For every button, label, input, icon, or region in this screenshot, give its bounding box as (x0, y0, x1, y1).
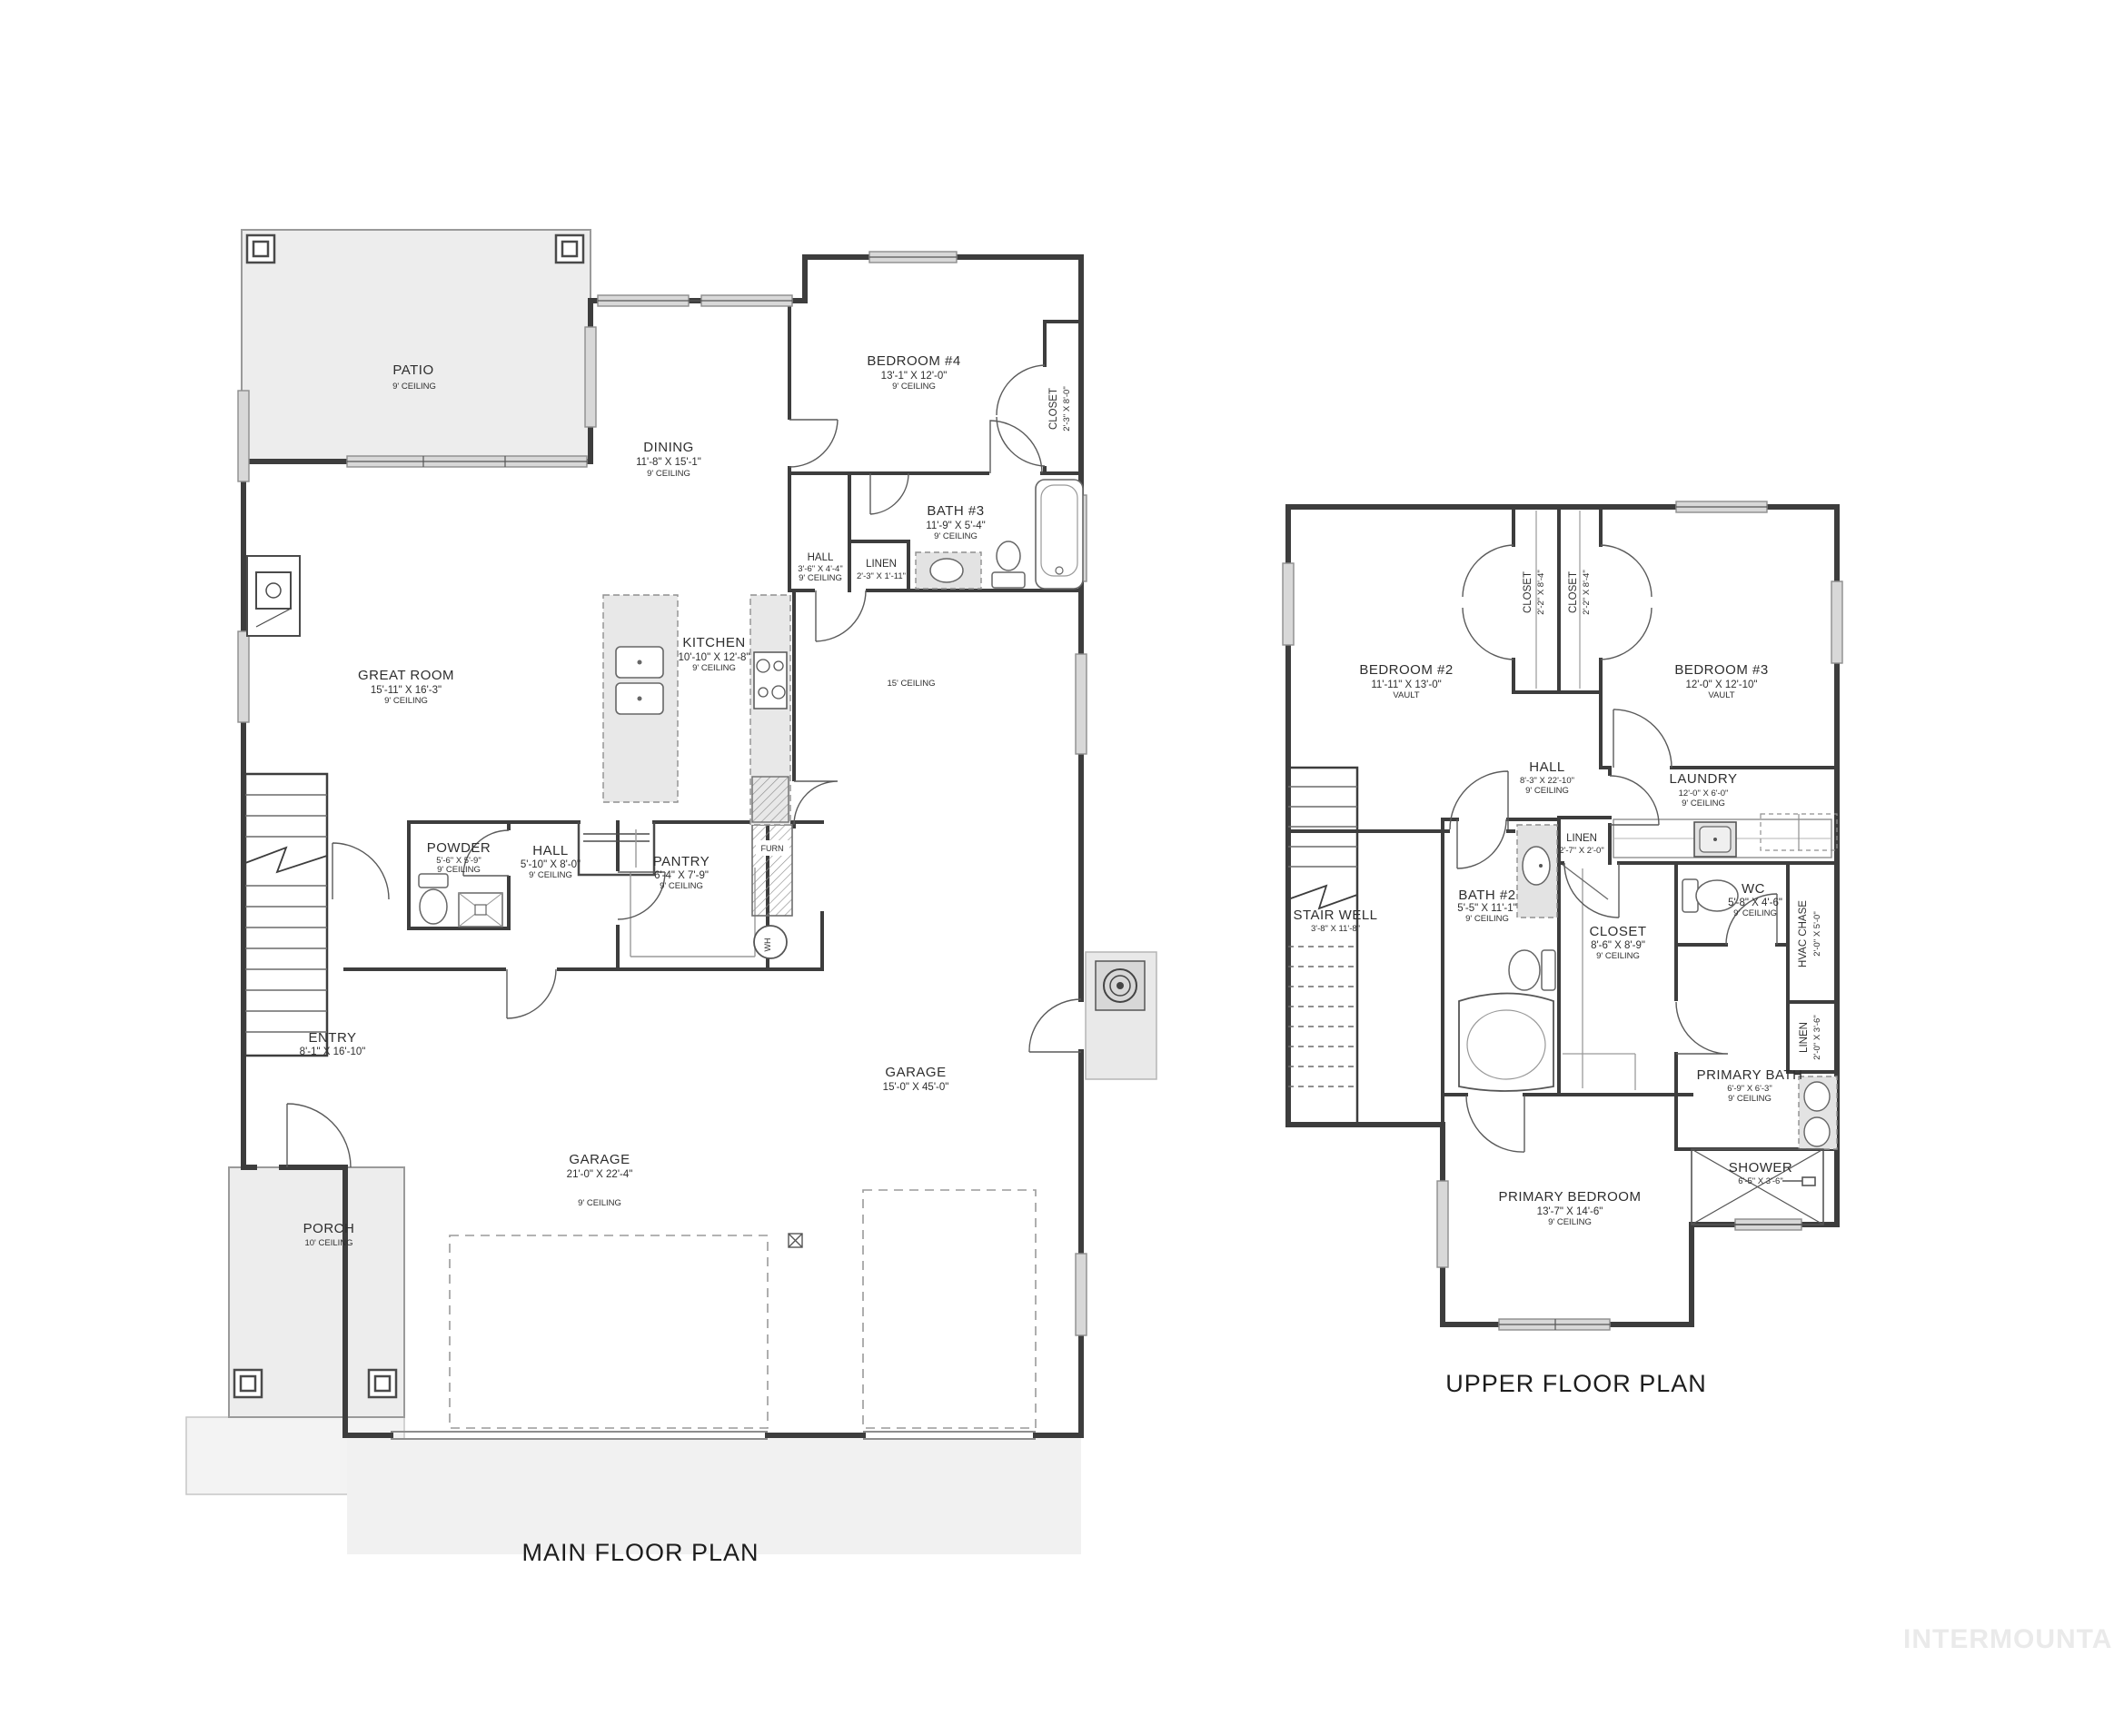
floor-plan-page: PATIO 9' CEILING DINING 11'-8" X 15'-1" … (0, 0, 2114, 1736)
main-floor-plan-title: MAIN FLOOR PLAN (504, 1539, 777, 1567)
label-stairwell-dims: 3'-8" X 11'-8" (1311, 924, 1360, 934)
label-hall-name: HALL (532, 843, 569, 858)
label-kitchen-name: KITCHEN (682, 635, 745, 650)
label-upper-hall-ceiling: 9' CEILING (1525, 786, 1569, 796)
label-closet4-dims: 2'-3" X 8'-0" (1062, 386, 1072, 431)
label-linenhall-dims: 2'-7" X 2'-0" (1559, 846, 1603, 856)
label-pantry-dims: 6'-4" X 7'-9" (654, 870, 709, 881)
garage-parking-pads (450, 1190, 1036, 1428)
walkin-closet-shelves (1563, 865, 1635, 1090)
label-bedroom2-ceiling: VAULT (1393, 690, 1419, 700)
kitchen-island (603, 595, 678, 802)
laundry-fixtures (1613, 814, 1837, 858)
label-bedroom3-name: BEDROOM #3 (1674, 662, 1768, 678)
label-shower-dims: 6'-5" X 3'-6" (1738, 1176, 1782, 1186)
bath2-fixtures (1459, 825, 1557, 1091)
label-bedroom3-dims: 12'-0" X 12'-10" (1685, 680, 1757, 690)
upper-interior-walls (1288, 507, 1837, 1149)
label-closet4-name: CLOSET (1048, 388, 1059, 430)
label-open-ceiling: 15' CEILING (887, 679, 935, 689)
label-dining-dims: 11'-8" X 15'-1" (636, 457, 701, 468)
label-pbath-name: PRIMARY BATH (1697, 1067, 1803, 1083)
floor-plan-drawing: PATIO 9' CEILING DINING 11'-8" X 15'-1" … (0, 0, 2114, 1736)
main-floor-plan: PATIO 9' CEILING DINING 11'-8" X 15'-1" … (186, 230, 1156, 1554)
label-upper-hall-dims: 8'-3" X 22'-10" (1520, 776, 1574, 786)
label-greatroom-ceiling: 9' CEILING (384, 696, 428, 706)
label-wc-ceiling: 9' CEILING (1733, 908, 1777, 918)
label-upper-hall-name: HALL (1529, 759, 1565, 775)
pantry-shelves (630, 829, 755, 957)
label-kitchen-dims: 10'-10" X 12'-8" (678, 652, 749, 663)
fireplace (247, 556, 300, 636)
label-walkin-ceiling: 9' CEILING (1596, 951, 1640, 961)
label-hallbed-name: HALL (808, 552, 834, 563)
label-bath3-dims: 11'-9" X 5'-4" (926, 521, 985, 531)
label-bath2-dims: 5'-5" X 11'-1" (1457, 903, 1516, 914)
label-stairwell-name: STAIR WELL (1293, 908, 1377, 923)
label-linenbath-dims: 2'-0" X 3'-6" (1812, 1015, 1822, 1059)
powder-fixtures (419, 874, 502, 927)
label-pbath-ceiling: 9' CEILING (1728, 1094, 1772, 1104)
label-bath3-ceiling: 9' CEILING (934, 531, 978, 541)
label-hallbed-ceiling: 9' CEILING (799, 573, 842, 583)
upper-floor-plan: BEDROOM #2 11'-11" X 13'-0" VAULT CLOSET… (1283, 501, 1842, 1330)
label-walkin-name: CLOSET (1589, 924, 1646, 939)
ac-pad (1086, 952, 1156, 1079)
label-linenhall-name: LINEN (1566, 833, 1597, 844)
floor-drain (789, 1234, 802, 1247)
label-kitchen-ceiling: 9' CEILING (692, 663, 736, 673)
patio-area (242, 230, 591, 461)
label-greatroom-name: GREAT ROOM (358, 668, 454, 683)
label-linen-dims: 2'-3" X 1'-11" (857, 571, 906, 581)
label-porch-name: PORCH (303, 1221, 355, 1236)
label-patio-ceiling: 9' CEILING (392, 382, 436, 392)
label-powder-ceiling: 9' CEILING (437, 865, 481, 875)
label-dining-name: DINING (643, 440, 694, 455)
label-pbed-dims: 13'-7" X 14'-6" (1537, 1206, 1603, 1217)
label-bedroom4-ceiling: 9' CEILING (892, 382, 936, 392)
label-pantry-name: PANTRY (653, 854, 710, 869)
label-entry-name: ENTRY (308, 1030, 356, 1046)
label-closet3-name: CLOSET (1568, 571, 1579, 613)
label-bath2-name: BATH #2 (1458, 888, 1515, 903)
label-rvgarage-name: GARAGE (885, 1065, 946, 1080)
label-pbath-dims: 6'-9" X 6'-3" (1727, 1084, 1772, 1094)
label-closet2-name: CLOSET (1523, 571, 1533, 613)
label-pbed-ceiling: 9' CEILING (1548, 1217, 1592, 1227)
label-bedroom2-dims: 11'-11" X 13'-0" (1371, 680, 1441, 690)
label-greatroom-dims: 15'-11" X 16'-3" (371, 685, 442, 696)
main-doors (287, 365, 1081, 1167)
label-hvac-dims: 2'-0" X 5'-0" (1812, 911, 1822, 956)
label-garage-ceiling: 9' CEILING (578, 1198, 621, 1208)
kitchen-counter (750, 595, 790, 825)
label-closet3-dims: 2'-2" X 8'-4" (1582, 570, 1592, 614)
label-bedroom3-ceiling: VAULT (1708, 690, 1734, 700)
label-walkin-dims: 8'-6" X 8'-9" (1591, 940, 1645, 951)
label-linenbath-name: LINEN (1799, 1022, 1810, 1053)
label-powder-name: POWDER (427, 840, 491, 856)
label-hall-dims: 5'-10" X 8'-0" (521, 859, 581, 870)
main-staircase (245, 774, 327, 1056)
label-entry-dims: 8'-1" X 16'-10" (300, 1047, 366, 1057)
primary-bath-fixtures (1799, 1076, 1837, 1149)
driveway-area (347, 1438, 1081, 1554)
label-pbed-name: PRIMARY BEDROOM (1499, 1189, 1642, 1205)
label-laundry-dims: 12'-0" X 6'-0" (1679, 789, 1729, 799)
label-wc-name: WC (1742, 881, 1765, 897)
label-porch-ceiling: 10' CEILING (304, 1238, 352, 1248)
label-bath3-name: BATH #3 (927, 503, 984, 519)
label-shower-name: SHOWER (1729, 1160, 1793, 1176)
furnace (752, 825, 792, 916)
label-bedroom2-name: BEDROOM #2 (1359, 662, 1453, 678)
label-dining-ceiling: 9' CEILING (647, 469, 690, 479)
label-pantry-ceiling: 9' CEILING (660, 881, 703, 891)
label-garage-dims: 21'-0" X 22'-4" (567, 1169, 633, 1180)
label-wc-dims: 5'-8" X 4'-6" (1728, 898, 1782, 908)
label-water-heater: WH (763, 938, 772, 952)
label-hall-ceiling: 9' CEILING (529, 870, 572, 880)
label-laundry-ceiling: 9' CEILING (1682, 799, 1725, 808)
intermountain-watermark: INTERMOUNTAIN (1903, 1624, 2114, 1655)
label-patio-name: PATIO (392, 362, 433, 378)
label-hvac-name: HVAC CHASE (1798, 900, 1809, 967)
label-rvgarage-dims: 15'-0" X 45'-0" (883, 1082, 949, 1093)
upper-staircase (1288, 768, 1357, 1125)
garage-door-panels (391, 1432, 1036, 1439)
upper-floor-plan-title: UPPER FLOOR PLAN (1399, 1370, 1753, 1398)
label-furnace: FURN (761, 844, 784, 853)
label-bath2-ceiling: 9' CEILING (1465, 914, 1509, 924)
label-linen-name: LINEN (866, 559, 897, 570)
label-closet2-dims: 2'-2" X 8'-4" (1536, 570, 1546, 614)
label-garage-name: GARAGE (569, 1152, 630, 1167)
label-bedroom4-name: BEDROOM #4 (867, 353, 960, 369)
label-laundry-name: LAUNDRY (1670, 771, 1738, 787)
label-bedroom4-dims: 13'-1" X 12'-0" (881, 371, 948, 382)
